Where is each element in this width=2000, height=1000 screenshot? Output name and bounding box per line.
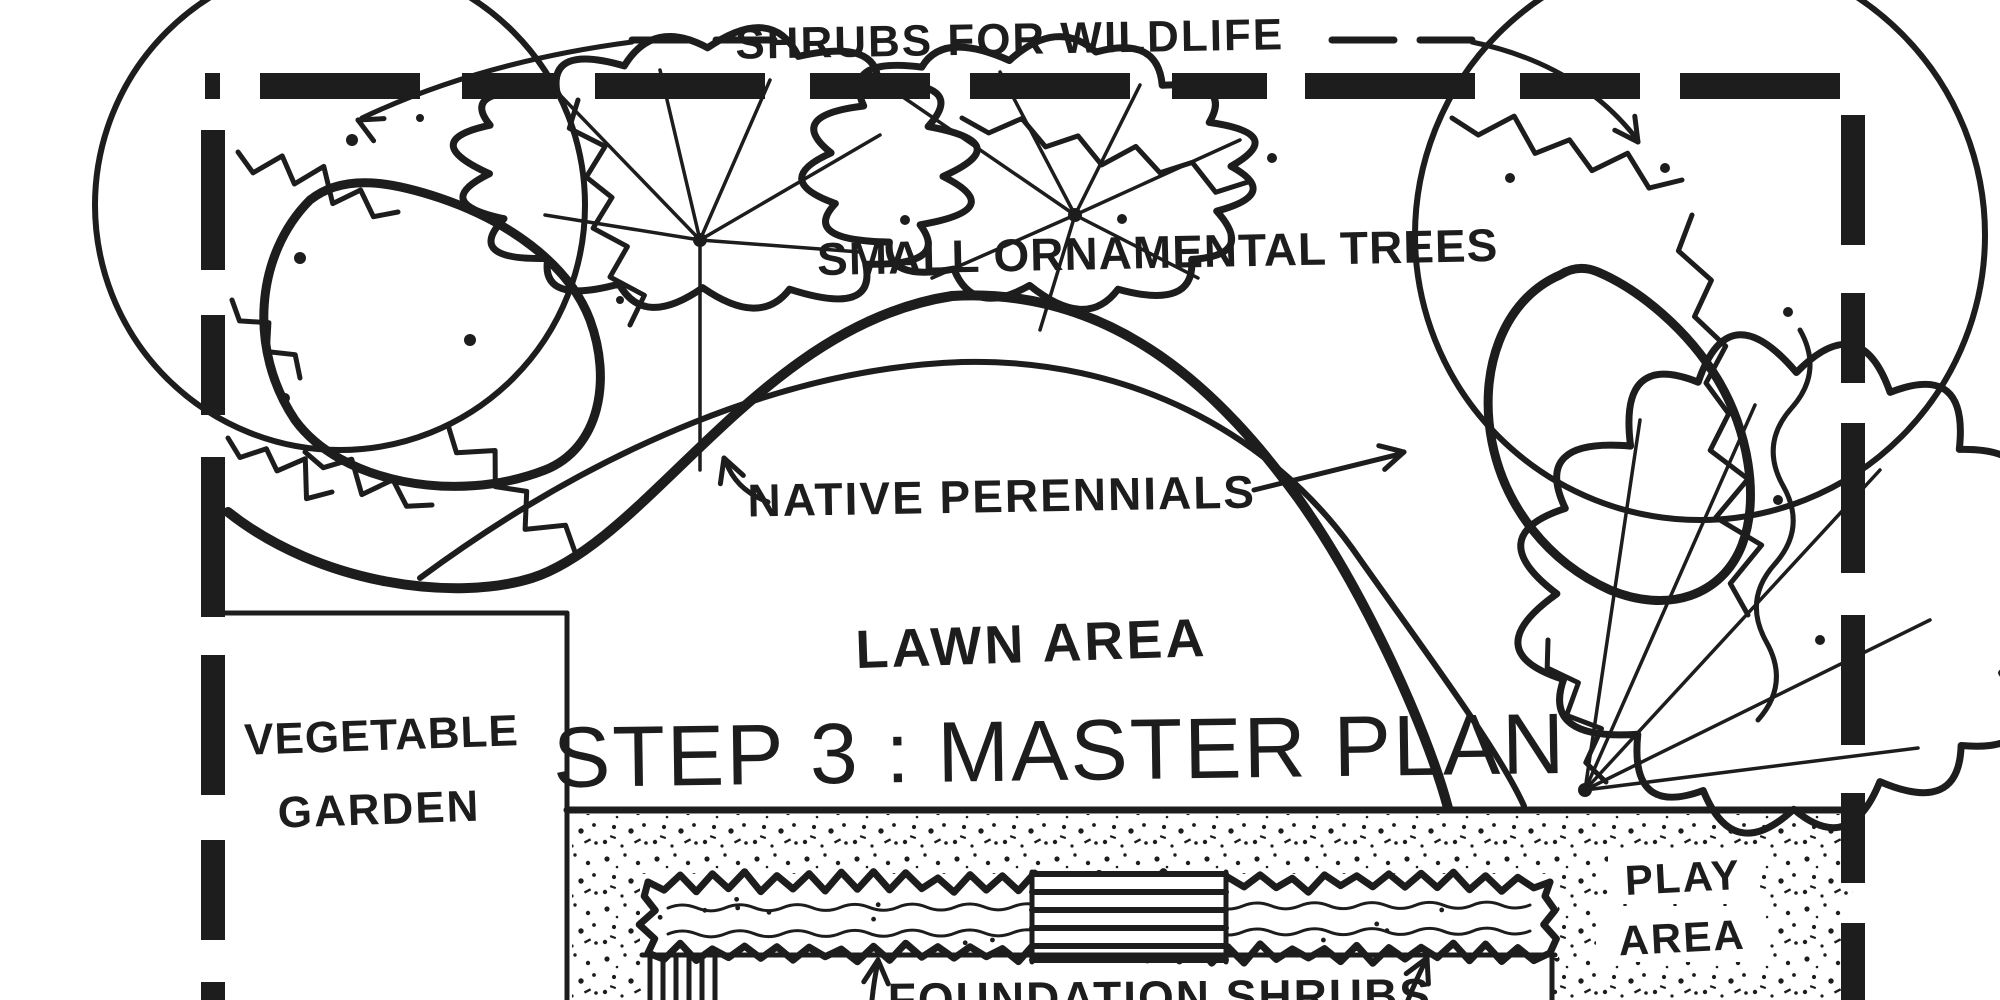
label-area: AREA (1617, 911, 1746, 965)
master-plan-drawing: SHRUBS FOR WILDLIFE SMALL ORNAMENTAL TRE… (0, 0, 2000, 1000)
label-vegetable-garden: VEGETABLE GARDEN (243, 706, 522, 839)
label-shrubs-for-wildlife: SHRUBS FOR WILDLIFE (735, 10, 1285, 69)
label-play: PLAY (1624, 851, 1742, 904)
label-foundation-shrubs: FOUNDATION SHRUBS (888, 969, 1433, 1000)
label-lawn-area: LAWN AREA (854, 608, 1208, 680)
label-native-perennials: NATIVE PERENNIALS (747, 466, 1256, 527)
landscape-master-plan-sheet: SHRUBS FOR WILDLIFE SMALL ORNAMENTAL TRE… (0, 0, 2000, 1000)
label-garden: GARDEN (277, 782, 481, 838)
label-step3-master-plan: STEP 3 : MASTER PLAN (552, 696, 1567, 806)
label-vegetable: VEGETABLE (243, 706, 519, 765)
